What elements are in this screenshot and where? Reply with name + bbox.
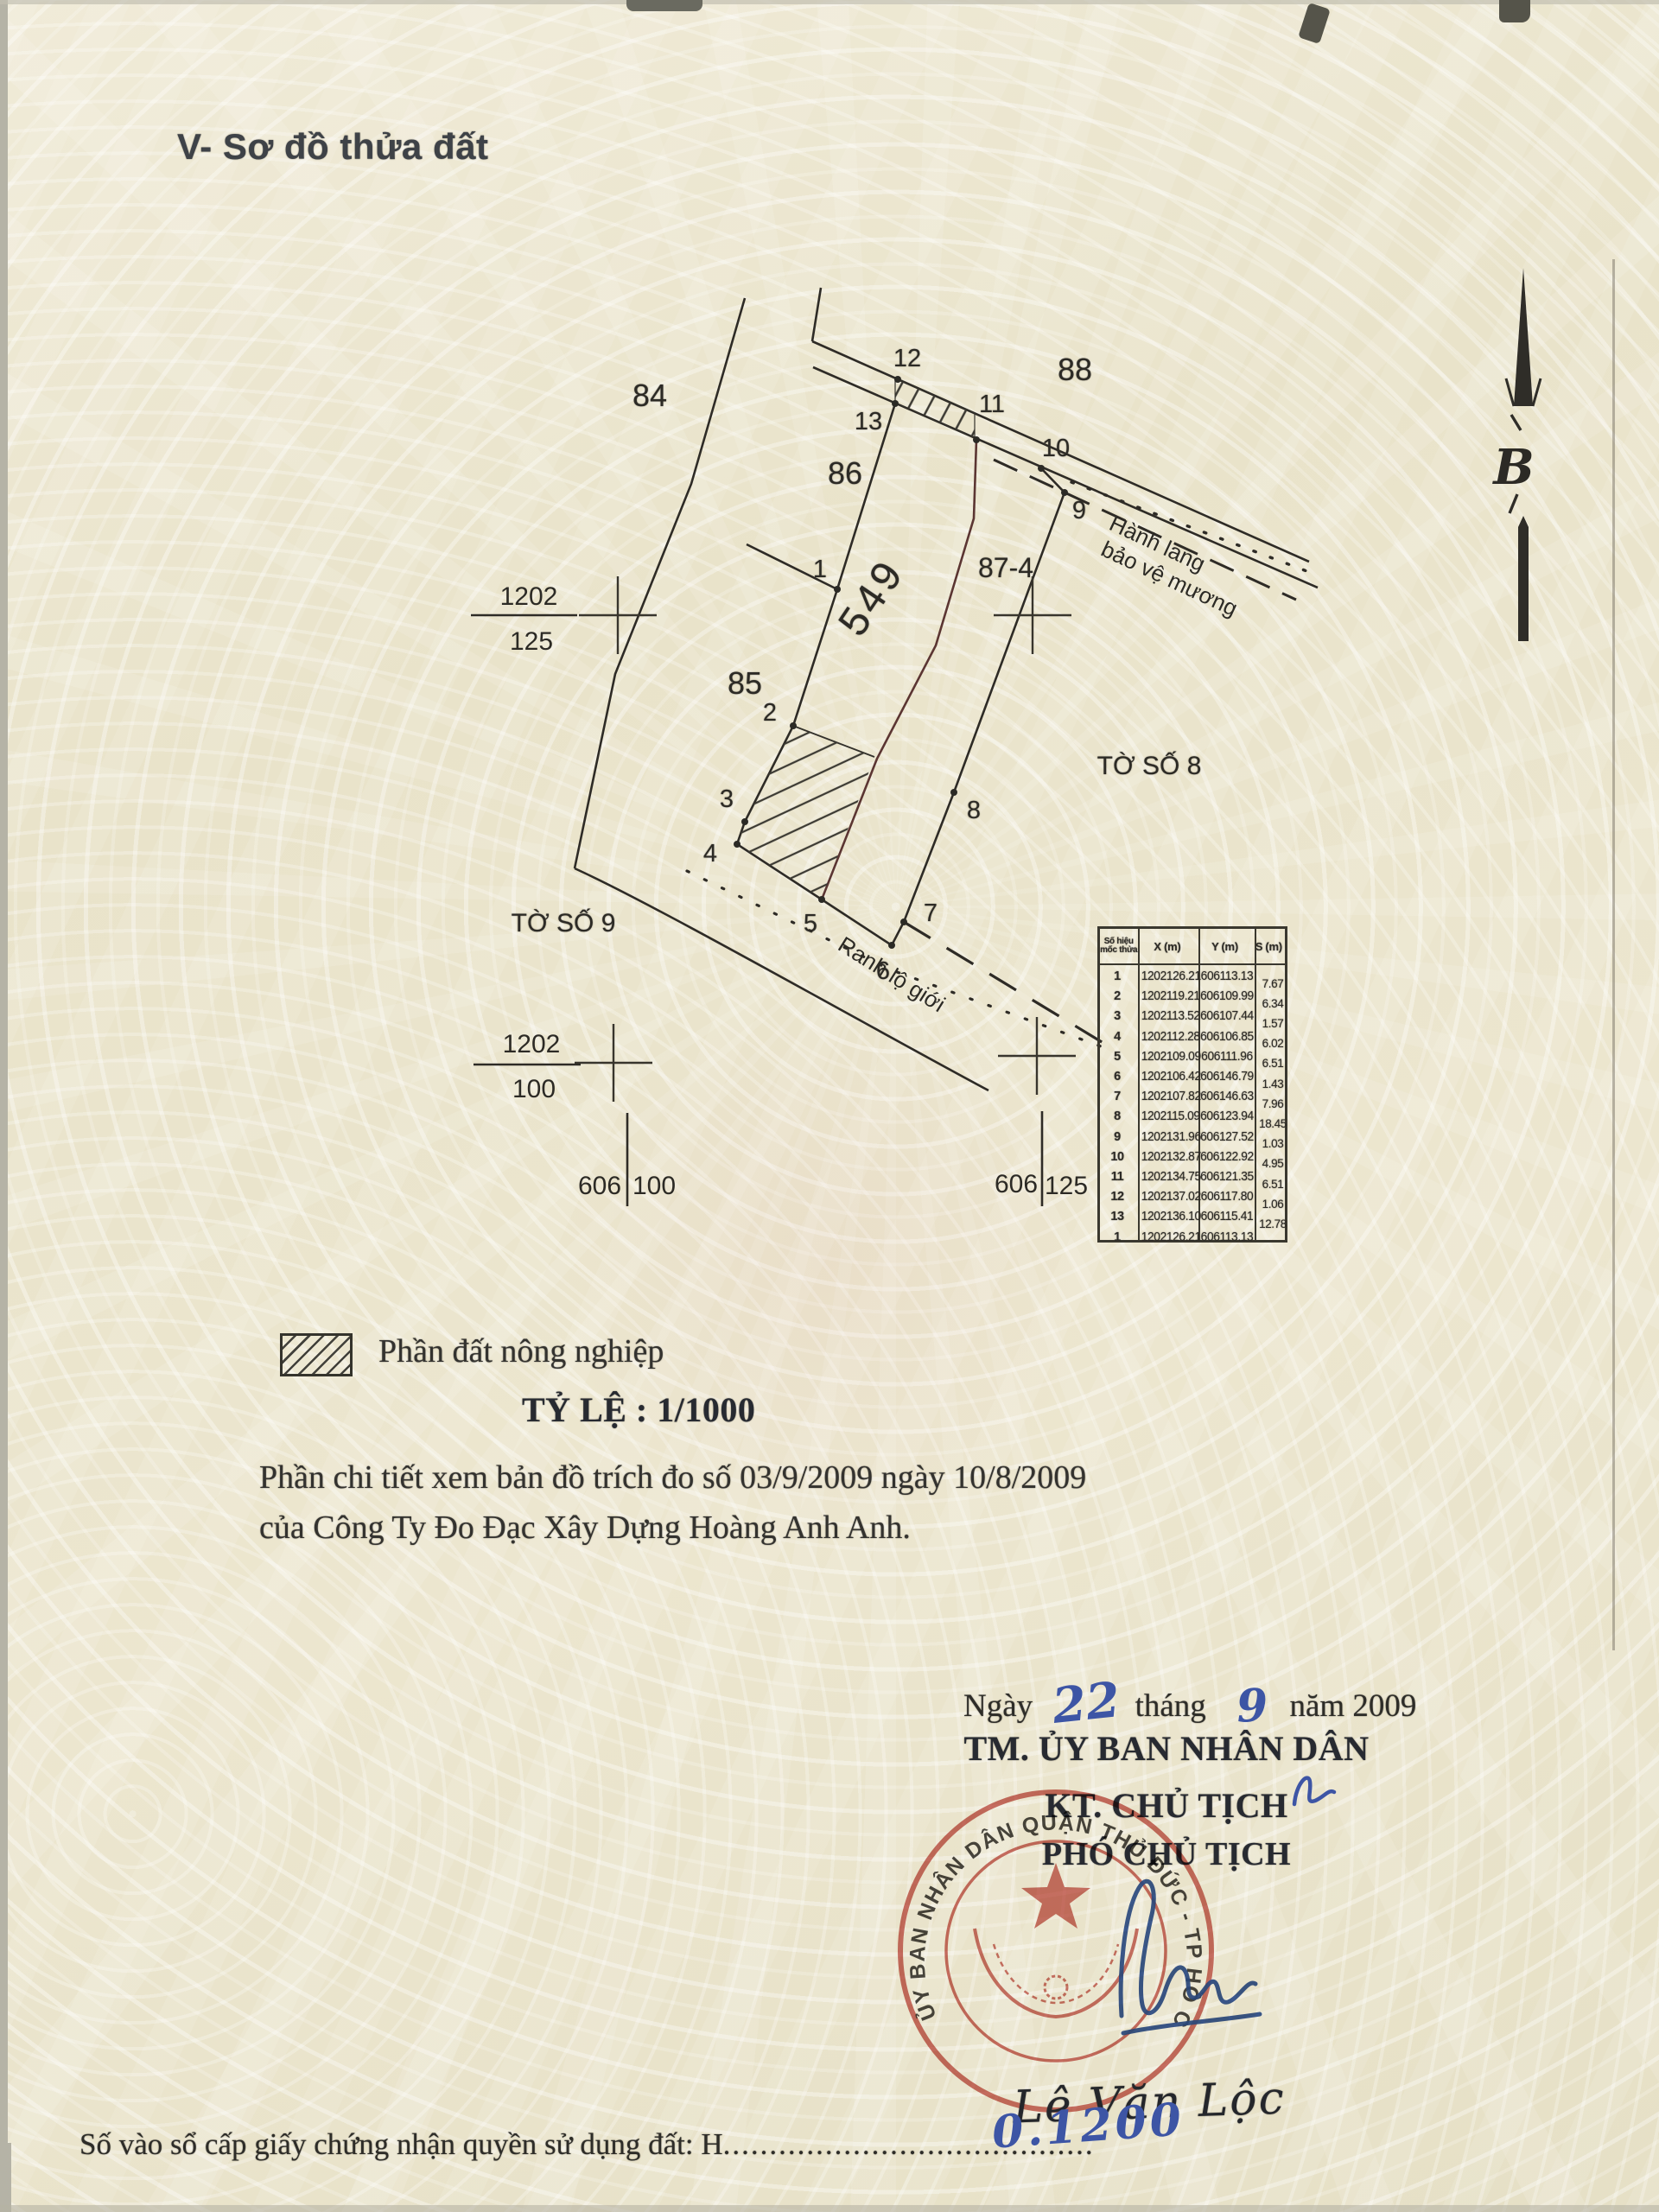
parcel-label-84: 84 — [632, 378, 667, 413]
scan-corner-shadow — [0, 2143, 11, 2212]
vertex-label-5: 5 — [804, 910, 817, 938]
col-header-y: Y (m) — [1197, 940, 1252, 953]
vertex-label-1: 1 — [813, 556, 827, 583]
col-header-s: S (m) — [1253, 940, 1285, 953]
agricultural-hatch-area — [737, 726, 874, 899]
vertex-label-7: 7 — [924, 899, 938, 927]
table-s-distance-value: 1.43 — [1256, 1077, 1289, 1090]
grid-mark-125-right: 125 — [1045, 1172, 1088, 1200]
table-s-distance-value: 18.45 — [1256, 1117, 1289, 1130]
stamp-star-icon — [1021, 1863, 1090, 1929]
page-title: V- Sơ đồ thửa đất — [177, 126, 488, 168]
vertex-label-2: 2 — [763, 699, 777, 727]
page-crease-line — [1612, 259, 1615, 1650]
handwritten-initial-mark — [1279, 1754, 1357, 1823]
sheet-label-9: TỜ SỐ 9 — [512, 908, 616, 938]
parcel-label-549: 549 — [830, 550, 914, 644]
legend-label: Phần đất nông nghiệp — [378, 1332, 664, 1370]
agricultural-hatch-legend-icon — [280, 1333, 353, 1376]
vertex-label-9: 9 — [1072, 497, 1086, 524]
registry-line: Số vào sổ cấp giấy chứng nhận quyền sử d… — [79, 2127, 1095, 2162]
canal-stub-line — [812, 288, 821, 341]
grid-mark-100-left: 100 — [632, 1172, 676, 1200]
table-s-distance-value: 1.03 — [1256, 1137, 1289, 1150]
table-s-distance-value: 12.78 — [1256, 1217, 1289, 1230]
table-divider-1 — [1138, 929, 1140, 1240]
table-s-distance-value: 1.06 — [1256, 1198, 1289, 1211]
vertex-label-10: 10 — [1042, 435, 1070, 462]
stamp-rings — [900, 1792, 1211, 2110]
table-s-distance-value: 4.95 — [1256, 1157, 1289, 1170]
table-header-rule — [1100, 963, 1285, 965]
date-year-label: năm 2009 — [1289, 1688, 1416, 1724]
handwritten-month: 9 — [1235, 1679, 1268, 1733]
grid-fraction-100: 100 — [512, 1075, 556, 1103]
map-scale-label: TỶ LỆ : 1/1000 — [522, 1389, 755, 1430]
vertex-label-11: 11 — [979, 391, 1005, 418]
grid-cross-nw — [579, 576, 657, 654]
note-line-1: Phần chi tiết xem bản đồ trích đo số 03/… — [259, 1459, 1086, 1497]
table-s-distance-value: 6.51 — [1256, 1057, 1289, 1070]
grid-fraction-125: 125 — [510, 627, 553, 656]
note-line-2: của Công Ty Đo Đạc Xây Dựng Hoàng Anh An… — [259, 1509, 911, 1547]
grid-cross-sw — [575, 1024, 652, 1102]
scanned-certificate-page: V- Sơ đồ thửa đất — [0, 0, 1659, 2212]
date-month-label: tháng — [1135, 1688, 1206, 1724]
grid-fraction-1202-top: 1202 — [500, 582, 558, 611]
grid-mark-606-right: 606 — [995, 1170, 1038, 1198]
table-s-distance-value: 7.96 — [1256, 1097, 1289, 1110]
paper-tear-mark-right — [1298, 3, 1331, 44]
canal-lower-line — [813, 367, 1318, 588]
table-s-distance-value: 7.67 — [1256, 977, 1289, 990]
north-label: B — [1491, 439, 1534, 496]
vertex-label-8: 8 — [967, 797, 981, 824]
scan-bottom-edge — [0, 2205, 1659, 2212]
table-s-distance-value: 6.51 — [1256, 1178, 1289, 1191]
sheet-label-8: TỜ SỐ 8 — [1097, 751, 1202, 780]
stamp-emblem — [975, 1863, 1137, 2017]
col-header-x: X (m) — [1137, 940, 1197, 953]
vertex-label-3: 3 — [720, 785, 734, 813]
canal-hatch-strip — [895, 378, 975, 438]
registry-label: Số vào sổ cấp giấy chứng nhận quyền sử d… — [79, 2127, 723, 2161]
grid-labels: 1202 125 1202 100 606 100 606 125 — [471, 582, 1088, 1206]
parcel-label-85: 85 — [728, 665, 762, 701]
grid-fraction-1202-bottom: 1202 — [503, 1030, 561, 1058]
date-prefix: Ngày — [963, 1688, 1033, 1724]
col-header-point-id: Số hiệu mốc thửa — [1100, 938, 1137, 955]
parcel-label-88: 88 — [1058, 352, 1092, 387]
vertex-label-12: 12 — [893, 345, 921, 372]
vertex-label-4: 4 — [703, 840, 717, 868]
north-arrow: B — [1460, 251, 1581, 665]
paper-tear-mark-top — [626, 0, 702, 11]
grid-mark-606-left: 606 — [578, 1172, 621, 1200]
table-s-distance-value: 6.02 — [1256, 1037, 1289, 1050]
coordinate-table: Số hiệu mốc thửa X (m) Y (m) S (m) 11202… — [1097, 926, 1287, 1243]
table-s-distance-value: 1.57 — [1256, 1017, 1289, 1030]
paper-tear-mark-corner — [1499, 0, 1530, 22]
parcel-label-86: 86 — [828, 455, 862, 491]
parcel-label-87-4: 87-4 — [978, 552, 1033, 583]
scan-top-edge — [0, 0, 1659, 4]
table-header-row: Số hiệu mốc thửa X (m) Y (m) S (m) — [1100, 929, 1285, 963]
handwritten-day: 22 — [1050, 1671, 1122, 1735]
grid-cross-ne — [994, 576, 1071, 654]
date-line: Ngày 22 tháng 9 năm 2009 — [963, 1671, 1447, 1728]
table-s-distance-value: 6.34 — [1256, 997, 1289, 1010]
scan-left-edge — [0, 0, 8, 2212]
vertex-label-13: 13 — [855, 408, 882, 435]
parcel-number-labels: 84 86 88 85 87-4 549 — [632, 352, 1092, 701]
grid-cross-se — [998, 1017, 1076, 1095]
